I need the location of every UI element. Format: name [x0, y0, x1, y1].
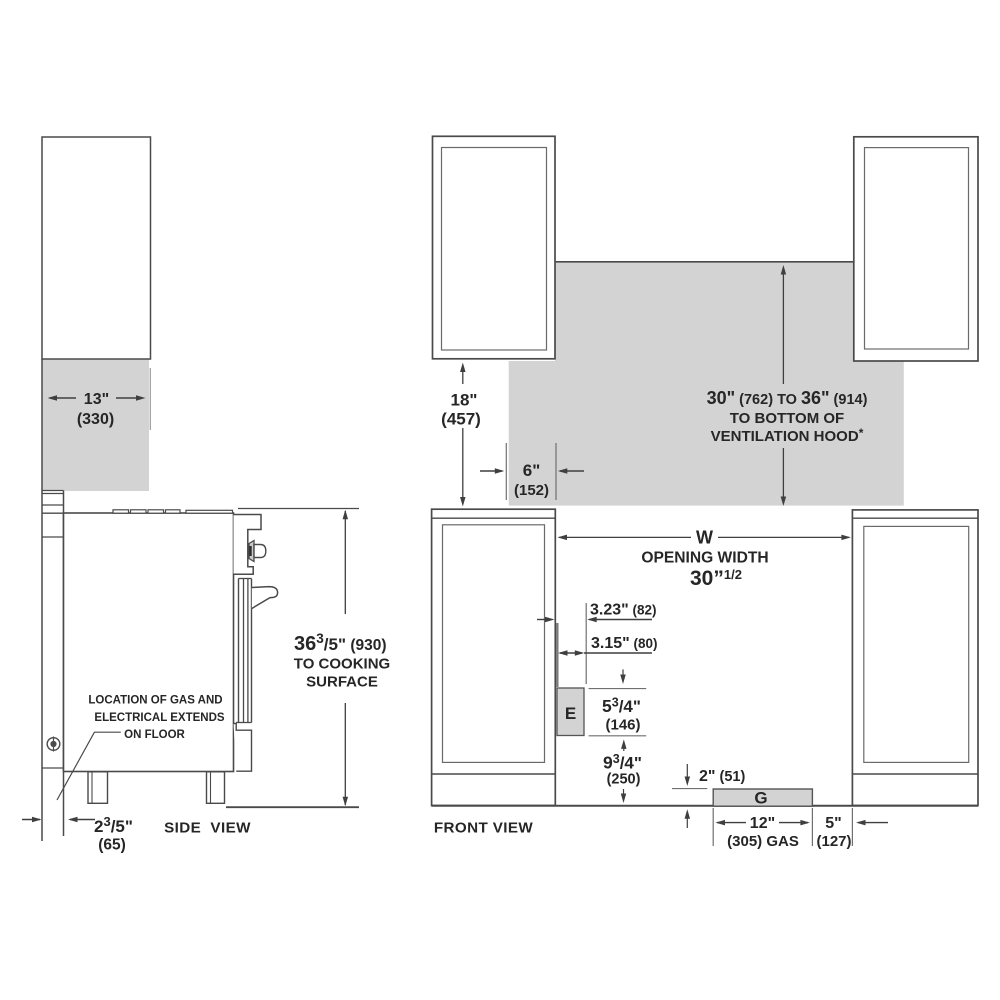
svg-text:(65): (65) [98, 837, 126, 854]
svg-text:VENTILATION HOOD*: VENTILATION HOOD* [711, 426, 864, 445]
svg-text:OPENING WIDTH: OPENING WIDTH [641, 550, 768, 567]
svg-text:13": 13" [84, 391, 109, 408]
svg-text:FRONT VIEW: FRONT VIEW [434, 820, 534, 837]
svg-text:(127): (127) [816, 833, 851, 850]
svg-text:18": 18" [451, 391, 478, 410]
svg-text:3.15" (80): 3.15" (80) [591, 635, 658, 652]
svg-text:W: W [696, 528, 713, 548]
svg-text:G: G [754, 789, 767, 808]
svg-text:ELECTRICAL EXTENDS: ELECTRICAL EXTENDS [94, 712, 224, 724]
svg-text:SURFACE: SURFACE [306, 674, 378, 691]
svg-text:6": 6" [523, 461, 541, 480]
svg-text:23/5": 23/5" [94, 814, 133, 836]
svg-text:5": 5" [825, 815, 841, 832]
svg-text:(305) GAS: (305) GAS [727, 833, 799, 850]
svg-text:ON FLOOR: ON FLOOR [124, 729, 185, 741]
svg-text:93/4": 93/4" [603, 752, 642, 773]
svg-text:SIDE VIEW: SIDE VIEW [164, 820, 251, 837]
svg-text:TO COOKING: TO COOKING [294, 656, 390, 673]
svg-text:(330): (330) [77, 411, 114, 428]
svg-text:E: E [565, 704, 576, 723]
svg-text:12": 12" [750, 815, 775, 832]
svg-text:3.23" (82): 3.23" (82) [590, 602, 657, 619]
svg-text:2" (51): 2" (51) [699, 768, 745, 785]
svg-text:(457): (457) [441, 410, 481, 429]
svg-text:53/4": 53/4" [602, 696, 641, 717]
svg-text:TO BOTTOM OF: TO BOTTOM OF [730, 410, 844, 427]
svg-text:(250): (250) [607, 772, 641, 788]
svg-text:(146): (146) [605, 717, 640, 734]
svg-text:LOCATION OF GAS AND: LOCATION OF GAS AND [88, 695, 222, 707]
svg-text:(152): (152) [514, 482, 549, 499]
